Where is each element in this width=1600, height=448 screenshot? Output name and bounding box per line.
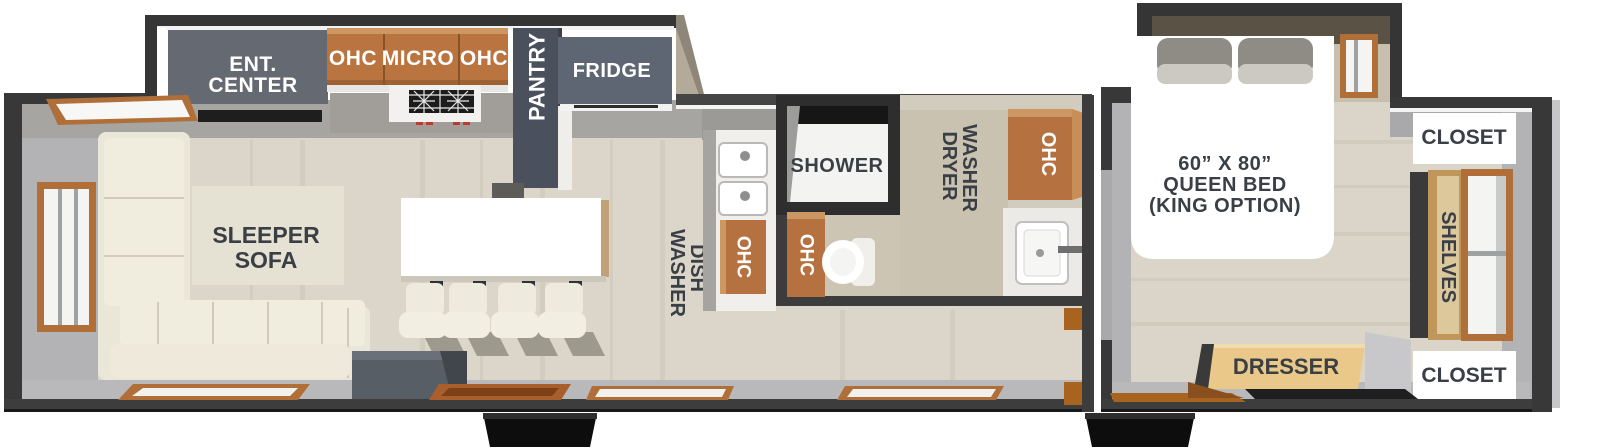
svg-text:SOFA: SOFA	[235, 247, 298, 273]
svg-text:60” X 80”: 60” X 80”	[1178, 153, 1271, 175]
svg-text:OHC: OHC	[733, 236, 754, 279]
svg-text:MICRO: MICRO	[382, 47, 455, 70]
svg-text:DRESSER: DRESSER	[1233, 354, 1339, 379]
svg-text:ENT.: ENT.	[229, 53, 277, 76]
svg-text:CLOSET: CLOSET	[1421, 364, 1506, 387]
svg-text:CLOSET: CLOSET	[1421, 126, 1506, 149]
svg-text:QUEEN BED: QUEEN BED	[1163, 174, 1286, 196]
svg-text:DRYER: DRYER	[938, 131, 960, 201]
svg-text:OHC: OHC	[460, 47, 508, 70]
svg-text:FRIDGE: FRIDGE	[573, 60, 652, 82]
svg-text:OHC: OHC	[796, 234, 817, 277]
svg-text:PANTRY: PANTRY	[525, 33, 550, 121]
svg-text:SHELVES: SHELVES	[1437, 211, 1459, 303]
svg-text:WASHER: WASHER	[666, 229, 688, 317]
svg-text:OHC: OHC	[1037, 132, 1059, 176]
svg-text:WASHER: WASHER	[958, 124, 980, 212]
svg-text:CENTER: CENTER	[208, 74, 297, 97]
svg-text:SLEEPER: SLEEPER	[212, 222, 320, 248]
svg-text:SHOWER: SHOWER	[791, 155, 884, 177]
svg-text:OHC: OHC	[329, 47, 377, 70]
svg-text:(KING OPTION): (KING OPTION)	[1149, 195, 1301, 217]
